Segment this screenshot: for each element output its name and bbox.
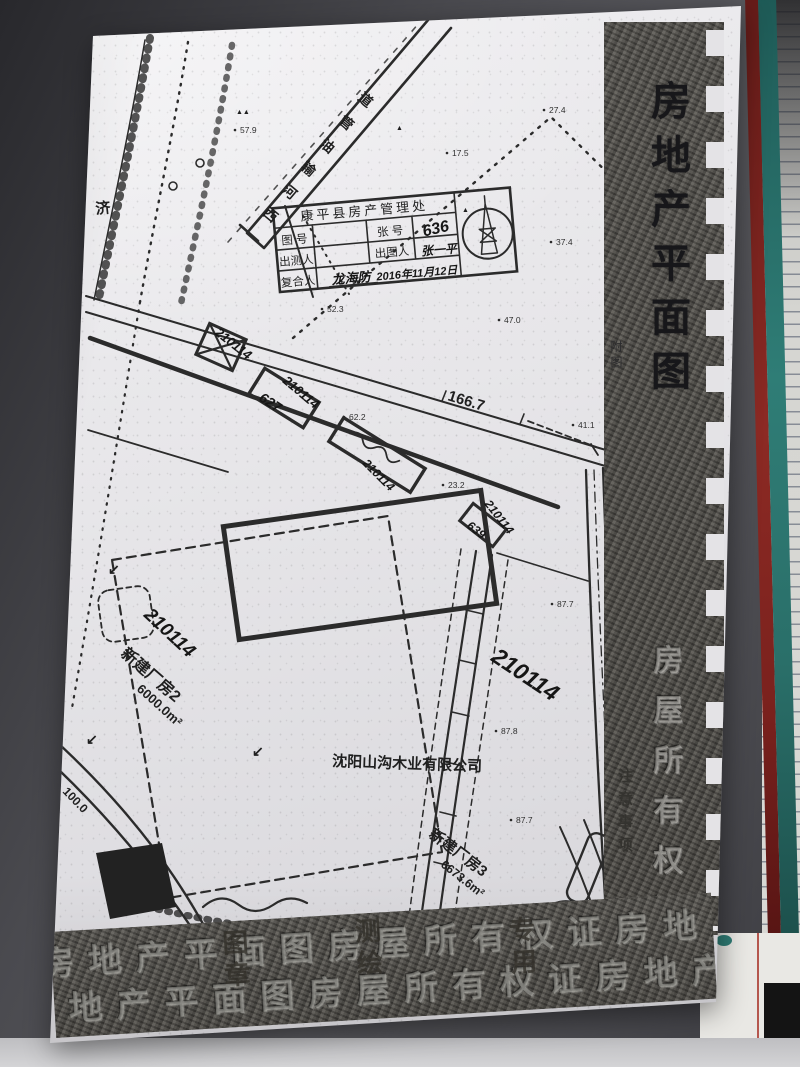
side-band-notches xyxy=(706,30,724,931)
elevation-dot xyxy=(572,424,575,427)
elevation-dot xyxy=(550,241,553,244)
side-band-dark-note: 注意事项 xyxy=(614,768,635,860)
stamp-label-drafter: 出图人 xyxy=(374,244,410,261)
elevation-value: 27.4 xyxy=(549,105,566,115)
stamp-label-sheet-no: 张 号 xyxy=(377,224,404,239)
elevation-value: 87.7 xyxy=(557,599,574,609)
thick-boundary-line xyxy=(90,338,558,507)
map-label: ▲▲ xyxy=(236,109,250,116)
handwritten-annotation: 210114 xyxy=(139,604,200,663)
filled-structure xyxy=(96,843,176,919)
survey-point xyxy=(169,182,177,190)
elevation-dot xyxy=(543,109,546,112)
railway-line xyxy=(94,40,145,300)
elevation-value: 57.9 xyxy=(240,125,257,135)
elevation-dot xyxy=(343,416,346,419)
steep-road-rungs xyxy=(434,610,483,866)
survey-point xyxy=(196,159,204,167)
stamp-label-map-no: 图 号 xyxy=(281,232,308,247)
road-line-upper xyxy=(86,296,616,453)
map-label: 沈阳山沟木业有限公司 xyxy=(332,752,483,775)
pen-scribble xyxy=(203,898,307,911)
side-band-emboss-text: 房屋所有权证 xyxy=(642,644,686,935)
handwritten-annotation: 210114 xyxy=(279,372,322,412)
side-band-small-note: 附图 xyxy=(608,340,625,372)
elevation-value: 62.2 xyxy=(349,412,366,422)
elevation-value: 17.5 xyxy=(452,148,469,158)
handwritten-annotation: 627 xyxy=(256,389,285,416)
overlay-mark: 专用 xyxy=(502,915,543,981)
map-label: 油 xyxy=(317,135,338,156)
map-label: ▲ xyxy=(462,207,469,214)
railway-ties xyxy=(99,38,150,298)
map-label: ↙ xyxy=(252,743,264,759)
map-label: ▲ xyxy=(396,125,403,132)
elevation-dot xyxy=(321,308,324,311)
elevation-value: 41.1 xyxy=(578,420,595,430)
main-factory-building xyxy=(223,490,496,639)
stamp-sheet-number: 636 xyxy=(421,218,451,241)
photo-scene: 康平县房产管理处 图 号 张 号 636 出测人 出图人 张一平 复合人 龙海防… xyxy=(0,0,800,1067)
paper-wrap: 康平县房产管理处 图 号 张 号 636 出测人 出图人 张一平 复合人 龙海防… xyxy=(0,0,800,1067)
elevation-dot xyxy=(551,603,554,606)
map-label: 济 xyxy=(95,198,113,218)
watermark-side-band: 房地产平面图 附图 房屋所有权证 注意事项 xyxy=(604,22,724,935)
elevation-dot xyxy=(446,152,449,155)
elevation-value: 87.8 xyxy=(501,726,518,736)
parcel-edge-line xyxy=(88,430,588,581)
stamp-label-surveyor: 出测人 xyxy=(279,252,315,269)
handwritten-annotation: 210114 xyxy=(486,642,564,706)
elevation-dot xyxy=(442,484,445,487)
dashed-corridor xyxy=(180,45,232,308)
map-label: 输 xyxy=(298,158,320,180)
elevation-dot xyxy=(510,819,513,822)
map-label: 河 xyxy=(279,181,300,202)
map-label: ↙ xyxy=(108,561,120,577)
map-label: ↙ xyxy=(86,731,98,747)
elevation-dot xyxy=(498,319,501,322)
elevation-value: 47.0 xyxy=(504,315,521,325)
pylon-mast xyxy=(476,195,497,254)
document-paper: 康平县房产管理处 图 号 张 号 636 出测人 出图人 张一平 复合人 龙海防… xyxy=(0,0,800,1067)
document-title-vertical: 房地产平面图 xyxy=(638,80,696,404)
dotted-corridor xyxy=(140,42,188,302)
map-label: 100.0 xyxy=(60,784,91,816)
overlay-mark: 测绘 xyxy=(348,916,389,982)
road-line-lower xyxy=(86,312,612,468)
elevation-value: 87.7 xyxy=(516,815,533,825)
elevation-value: 37.4 xyxy=(556,237,573,247)
elevation-dot xyxy=(234,129,237,132)
elevation-value: 23.2 xyxy=(448,480,465,490)
map-label: 166.7 xyxy=(446,388,487,415)
elevation-dot xyxy=(495,730,498,733)
overlay-mark: 图章 xyxy=(215,928,256,994)
elevation-value: 52.3 xyxy=(327,304,344,314)
